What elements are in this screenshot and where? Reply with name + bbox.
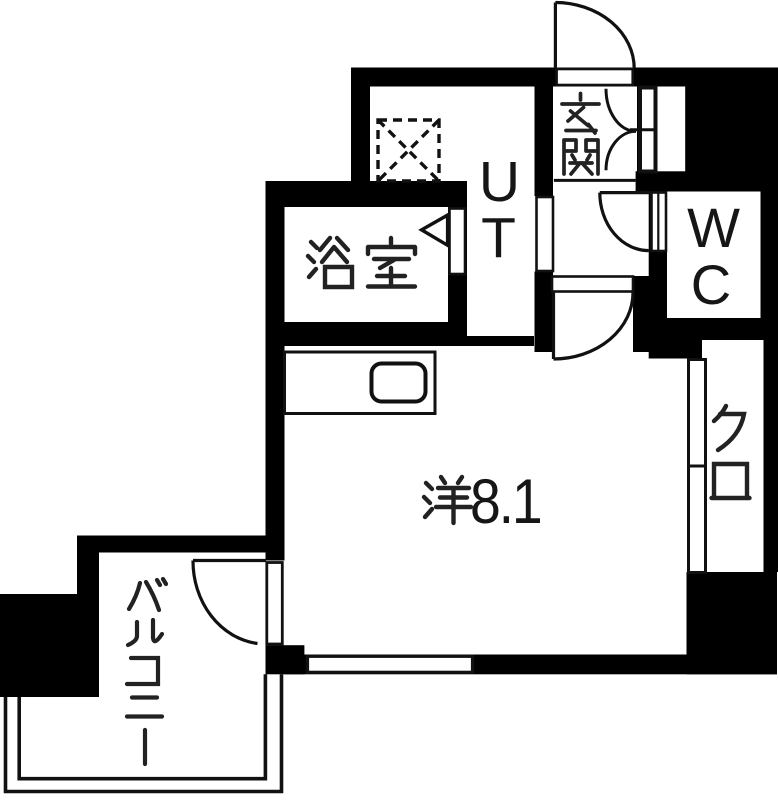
svg-text:T: T	[481, 206, 516, 270]
svg-text:U: U	[479, 150, 520, 214]
svg-text:W: W	[687, 196, 740, 259]
svg-text:8.1: 8.1	[470, 466, 541, 537]
svg-text:C: C	[691, 253, 731, 316]
